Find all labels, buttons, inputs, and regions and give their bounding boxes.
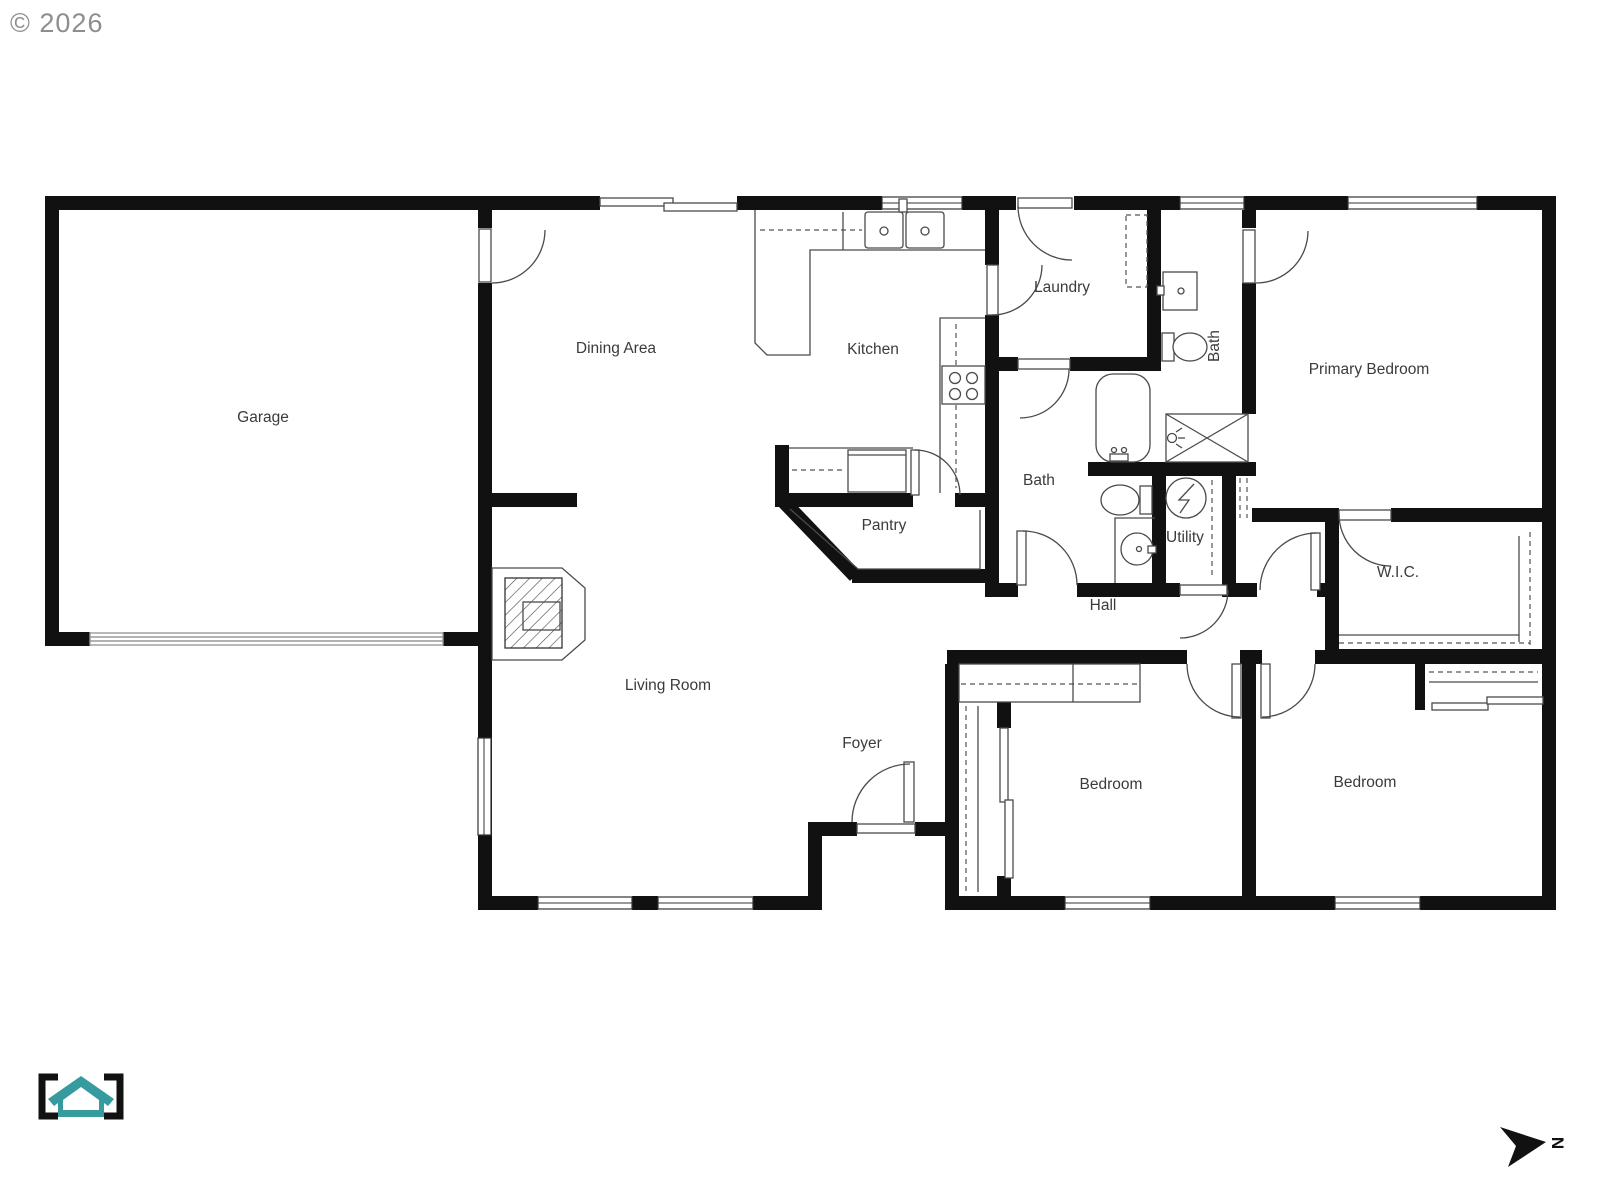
bedroom-right-door (1261, 664, 1315, 718)
room-label-dining: Dining Area (576, 340, 657, 357)
living-room-window-left-wall (478, 738, 491, 835)
bathtub-icon (1096, 374, 1150, 462)
primary-bedroom-door (1243, 230, 1308, 283)
room-label-pantry: Pantry (862, 517, 907, 534)
north-arrow-icon (1500, 1127, 1546, 1167)
toilet-icon (1162, 333, 1207, 361)
bath-sink-icon (1157, 272, 1197, 310)
pantry-door (911, 450, 960, 495)
dining-sliding-door (600, 198, 737, 211)
room-label-primary-bedroom: Primary Bedroom (1309, 361, 1430, 378)
bedroom-left-window (1065, 897, 1150, 909)
living-room-window-1 (538, 897, 632, 909)
room-label-utility: Utility (1166, 529, 1204, 546)
room-label-laundry: Laundry (1034, 279, 1090, 296)
room-label-bedroom-right: Bedroom (1334, 774, 1397, 791)
laundry-fixtures (1126, 215, 1147, 287)
wic-door (1339, 510, 1391, 566)
room-label-bath-upper: Bath (1206, 330, 1223, 362)
primary-suite-door (1260, 533, 1320, 590)
bedroom-left-door (1187, 664, 1241, 718)
kitchen-window (882, 197, 962, 209)
toilet-icon (1101, 485, 1152, 515)
room-label-garage: Garage (237, 409, 289, 426)
room-label-hall: Hall (1090, 597, 1117, 614)
compass: N (1500, 1127, 1567, 1167)
garage-door (90, 633, 443, 645)
wic-shelves (1339, 532, 1530, 646)
bedroom-right-closet (1429, 672, 1543, 710)
bath-lower-fixtures (1096, 374, 1156, 583)
copyright-text: © 2026 (10, 8, 103, 38)
bath-window (1180, 197, 1244, 209)
living-room-window-2 (658, 897, 753, 909)
bath-lower-top-door (1018, 359, 1070, 418)
bath-upper-fixtures (1157, 272, 1248, 462)
room-label-kitchen: Kitchen (847, 341, 899, 358)
laundry-back-door (1018, 198, 1072, 260)
water-heater-icon (1166, 478, 1206, 518)
pedestal-sink-icon (1115, 518, 1156, 583)
utility-door (1180, 585, 1228, 638)
north-label: N (1548, 1137, 1567, 1149)
dishwasher-icon (848, 450, 906, 492)
primary-bedroom-window (1348, 197, 1477, 209)
room-label-living: Living Room (625, 677, 711, 694)
floor-plan: Garage Dining Area Kitchen Laundry Bath … (0, 0, 1600, 1200)
bath-lower-hall-door (1017, 531, 1077, 585)
brand-logo-icon (42, 1076, 120, 1117)
room-label-foyer: Foyer (842, 735, 882, 752)
room-label-wic: W.I.C. (1377, 564, 1419, 581)
fireplace-icon (492, 568, 585, 660)
walls (45, 196, 1556, 910)
bedroom-right-window (1335, 897, 1420, 909)
room-label-bath-lower: Bath (1023, 472, 1055, 489)
stove-icon (942, 366, 985, 404)
foyer-entry-door (852, 762, 915, 833)
garage-entry-door (479, 229, 545, 283)
room-label-bedroom-left: Bedroom (1080, 776, 1143, 793)
shower-icon (1166, 414, 1248, 462)
